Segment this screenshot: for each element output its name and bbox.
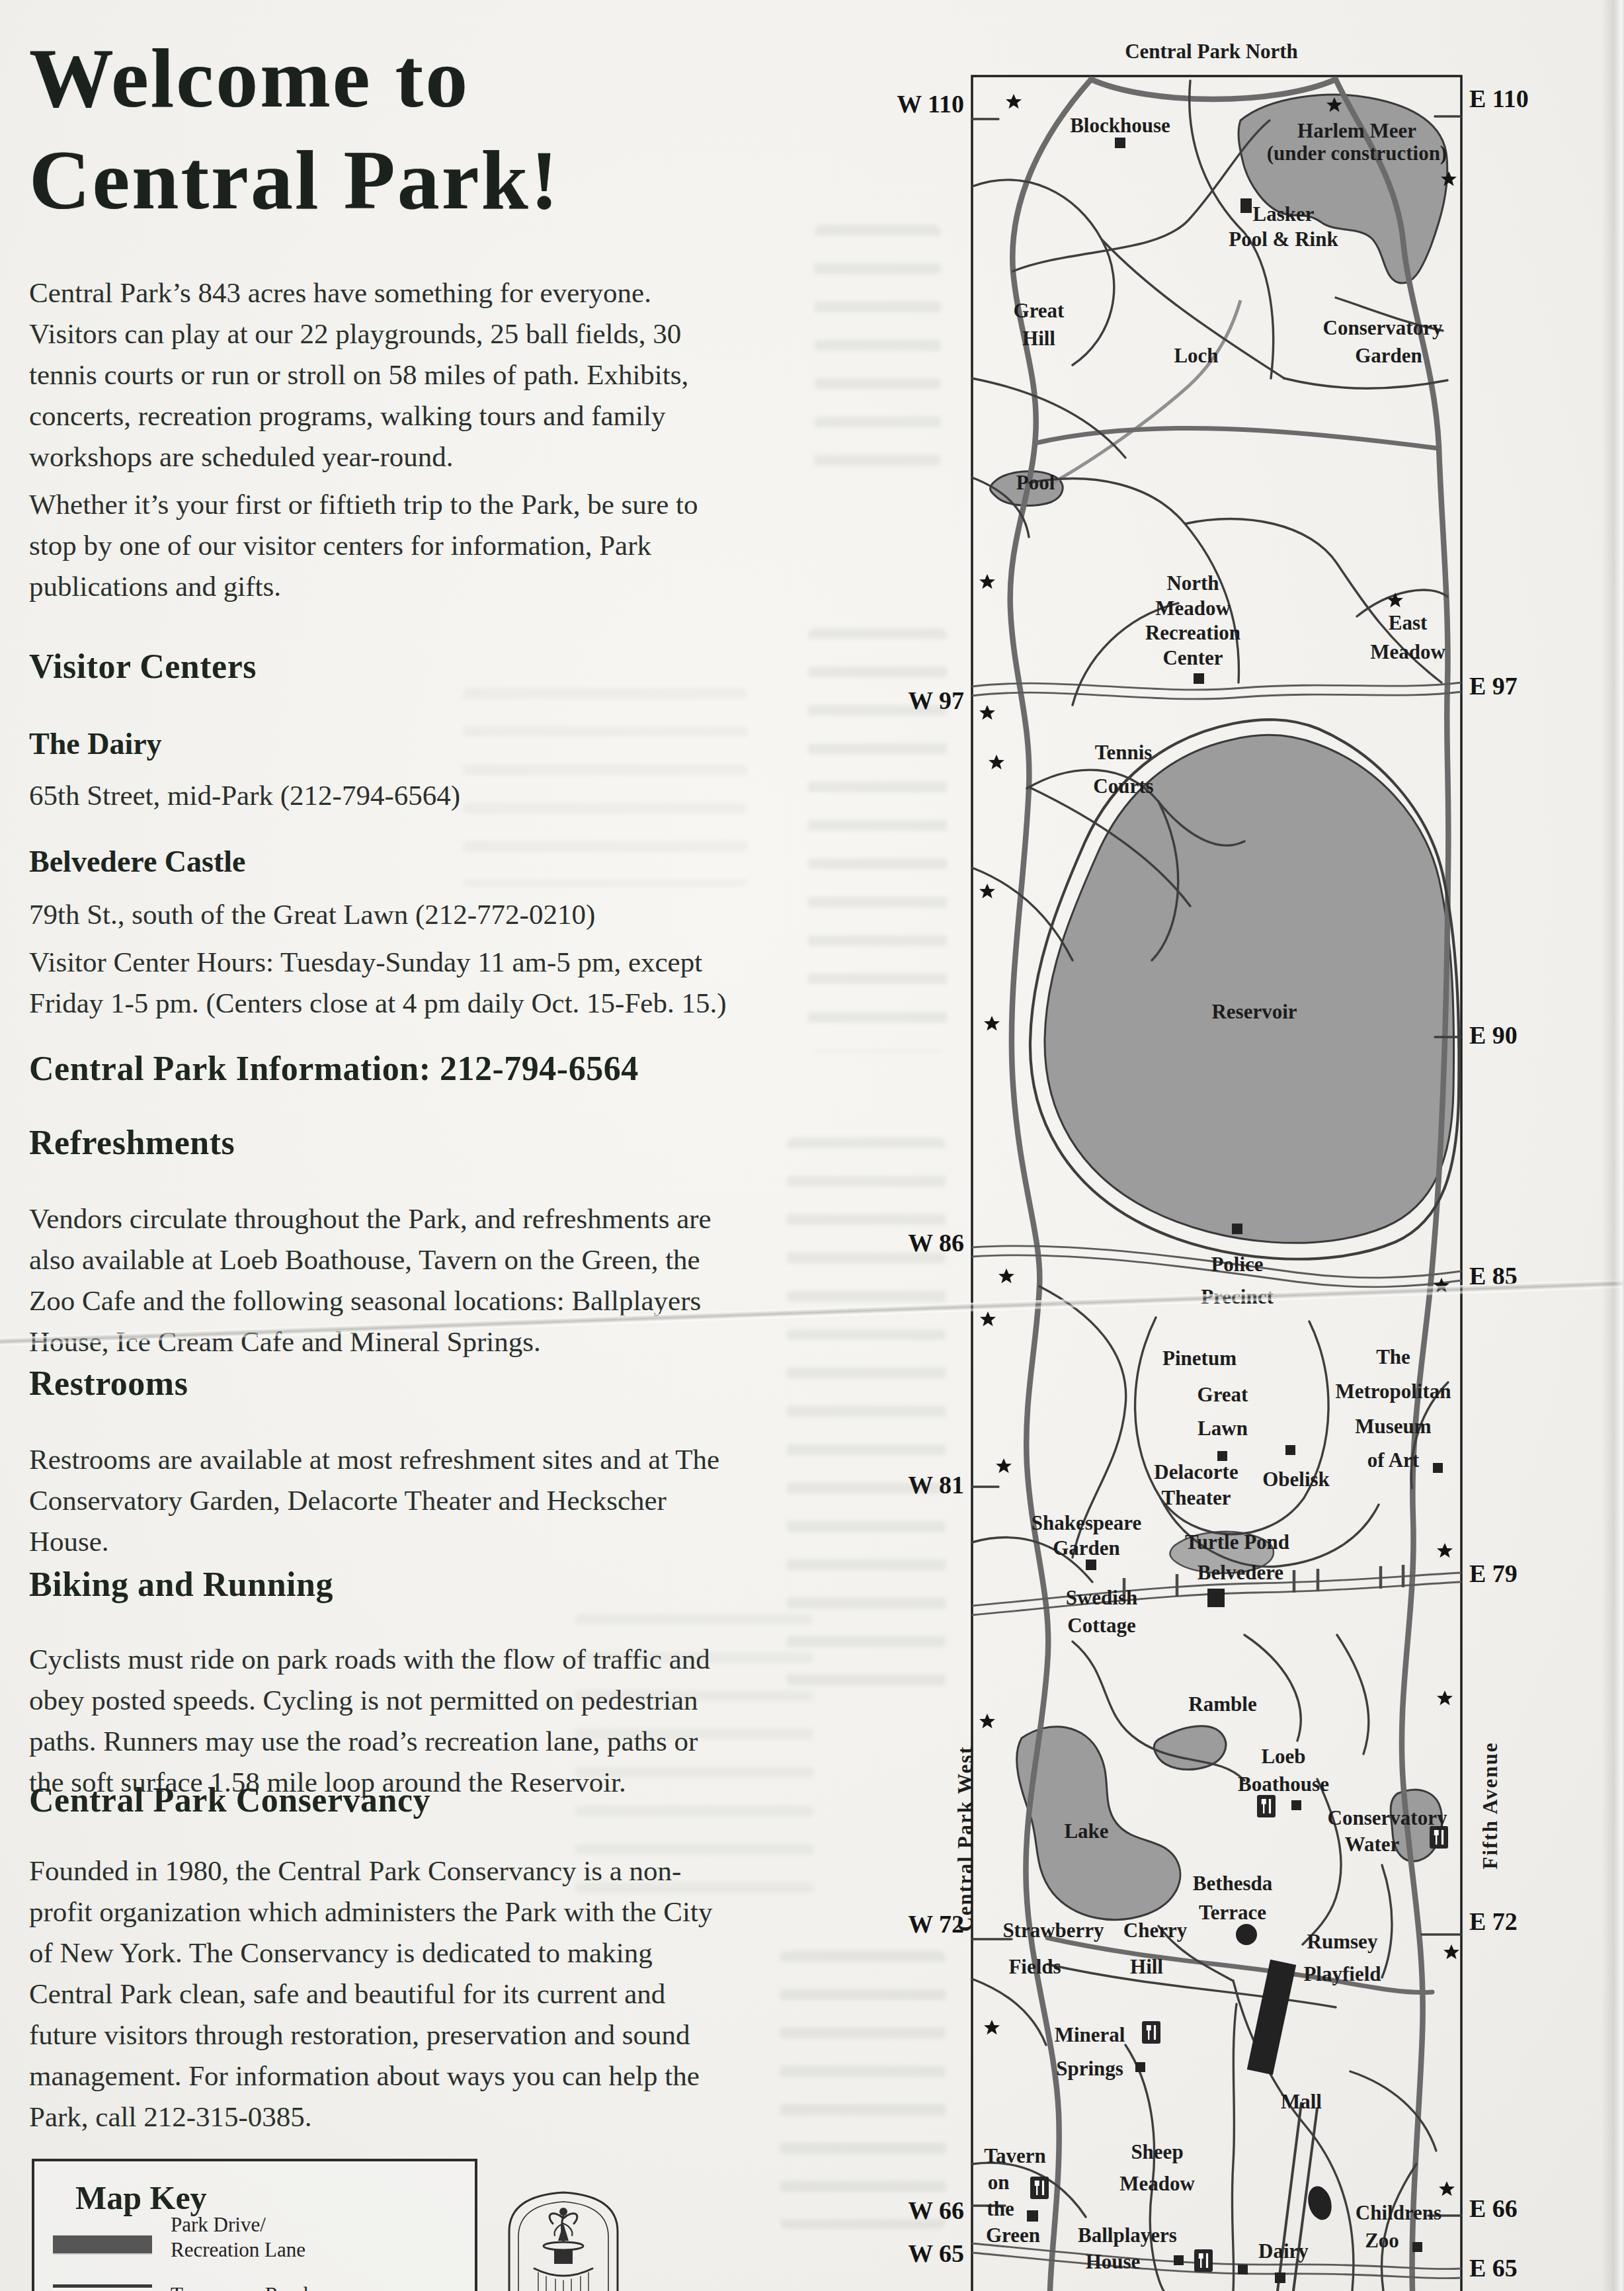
street-label-e72: E 72 bbox=[1469, 1907, 1518, 1935]
bleed-through-ghost bbox=[808, 628, 947, 1052]
intro-paragraph-2: Whether it’s your first or fiftieth trip… bbox=[29, 484, 698, 607]
visitor-center-hours: Visitor Center Hours: Tuesday-Sunday 11 … bbox=[29, 942, 727, 1024]
label-conservatory-water: Conservatory bbox=[1328, 1806, 1447, 1829]
label-lake: Lake bbox=[1064, 1819, 1108, 1843]
section-heading-biking-running: Biking and Running bbox=[29, 1565, 333, 1604]
label-sheep-meadow: Sheep bbox=[1131, 2140, 1183, 2163]
park-drive-swatch bbox=[53, 2235, 152, 2253]
street-label-e66: E 66 bbox=[1469, 2194, 1518, 2222]
label-bethesda-terrace-2: Terrace bbox=[1199, 1901, 1266, 1924]
label-rumsey-playfield-2: Playfield bbox=[1303, 1962, 1381, 1985]
body-line: of New York. The Conservancy is dedicate… bbox=[29, 1933, 712, 1974]
map-key-label: Park Drive/ bbox=[171, 2213, 266, 2237]
label-lasker-2: Pool & Rink bbox=[1229, 228, 1338, 251]
body-line: also available at Loeb Boathouse, Tavern… bbox=[29, 1239, 711, 1280]
restrooms-body: Restrooms are available at most refreshm… bbox=[29, 1439, 719, 1562]
street-label-e65: E 65 bbox=[1469, 2254, 1518, 2282]
label-met-museum-3: Museum bbox=[1355, 1415, 1432, 1438]
label-belvedere: Belvedere bbox=[1198, 1561, 1283, 1584]
visitor-center-name-dairy: The Dairy bbox=[29, 726, 162, 761]
body-line: concerts, recreation programs, walking t… bbox=[29, 396, 688, 437]
label-great-hill-2: Hill bbox=[1022, 327, 1055, 350]
label-ramble: Ramble bbox=[1188, 1692, 1256, 1716]
label-bethesda-terrace: Bethesda bbox=[1193, 1872, 1273, 1895]
label-pool: Pool bbox=[1016, 471, 1055, 494]
visitor-center-name-belvedere: Belvedere Castle bbox=[29, 844, 245, 879]
label-ballplayers-house-2: House bbox=[1086, 2250, 1141, 2273]
body-line: Central Park clean, safe and beautiful f… bbox=[29, 1974, 712, 2015]
page-title-line2: Central Park! bbox=[29, 130, 560, 231]
label-childrens-zoo-2: Zoo bbox=[1365, 2229, 1399, 2252]
body-line: Visitor Center Hours: Tuesday-Sunday 11 … bbox=[29, 942, 727, 983]
label-shakespeare-garden-2: Garden bbox=[1053, 1536, 1120, 1560]
body-line: Friday 1-5 pm. (Centers close at 4 pm da… bbox=[29, 983, 727, 1024]
map-title: Central Park North bbox=[1125, 40, 1298, 63]
map-key-box: Map Key Park Drive/ Recreation Lane Tran… bbox=[32, 2159, 477, 2291]
label-conservatory-garden-2: Garden bbox=[1355, 344, 1422, 367]
park-map: Central Park North W 110 E 110 W 97 E 97… bbox=[873, 20, 1624, 2291]
brochure-page: Welcome to Central Park! Central Park’s … bbox=[0, 0, 1624, 2291]
section-heading-refreshments: Refreshments bbox=[29, 1123, 235, 1162]
label-delacorte-2: Theater bbox=[1161, 1486, 1231, 1509]
label-met-museum-4: of Art bbox=[1367, 1448, 1420, 1472]
label-tavern-2: on bbox=[988, 2171, 1010, 2194]
label-ballplayers-house: Ballplayers bbox=[1078, 2224, 1177, 2247]
label-tennis-courts-2: Courts bbox=[1093, 774, 1153, 798]
restaurant-icon-mineral-springs bbox=[1142, 2021, 1160, 2044]
label-east-meadow-2: Meadow bbox=[1370, 640, 1445, 663]
label-north-meadow-2: Meadow bbox=[1155, 597, 1231, 620]
label-north-meadow-3: Recreation bbox=[1145, 621, 1240, 644]
loch-stream bbox=[1053, 300, 1240, 483]
street-label-e90: E 90 bbox=[1469, 1021, 1518, 1049]
map-key-heading: Map Key bbox=[75, 2179, 207, 2217]
label-tennis-courts: Tennis bbox=[1095, 741, 1153, 764]
label-strawberry-fields-2: Fields bbox=[1008, 1955, 1061, 1978]
label-conservatory-garden: Conservatory bbox=[1323, 316, 1443, 339]
street-label-w65: W 65 bbox=[908, 2239, 964, 2267]
body-line: tennis courts or run or stroll on 58 mil… bbox=[29, 354, 688, 396]
label-swedish-cottage: Swedish bbox=[1066, 1586, 1138, 1609]
bleed-through-ghost bbox=[815, 225, 940, 489]
reservoir-water bbox=[1045, 735, 1454, 1243]
bethesda-fountain-illustration bbox=[497, 2183, 629, 2291]
label-tavern: Tavern bbox=[984, 2144, 1046, 2167]
label-loeb-boathouse-2: Boathouse bbox=[1238, 1772, 1329, 1796]
body-line: management. For information about ways y… bbox=[29, 2056, 712, 2097]
label-police-precinct: Police bbox=[1211, 1253, 1263, 1276]
restaurant-icon-conservatory-water bbox=[1430, 1826, 1448, 1849]
label-cherry-hill: Cherry bbox=[1123, 1919, 1188, 1942]
street-label-e110: E 110 bbox=[1469, 85, 1529, 112]
section-heading-visitor-centers: Visitor Centers bbox=[29, 647, 257, 686]
body-line: Restrooms are available at most refreshm… bbox=[29, 1439, 719, 1480]
label-delacorte: Delacorte bbox=[1154, 1460, 1238, 1483]
label-rumsey-playfield: Rumsey bbox=[1307, 1930, 1378, 1953]
label-strawberry-fields: Strawberry bbox=[1002, 1919, 1104, 1942]
label-turtle-pond: Turtle Pond bbox=[1185, 1530, 1289, 1554]
visitor-center-detail-dairy: 65th Street, mid-Park (212-794-6564) bbox=[29, 775, 460, 816]
body-line: Park, call 212-315-0385. bbox=[29, 2097, 712, 2138]
carousel-marker bbox=[1305, 2183, 1335, 2222]
bleed-through-ghost bbox=[463, 688, 747, 886]
page-title: Welcome to Central Park! bbox=[29, 28, 560, 231]
label-north-meadow: North bbox=[1166, 571, 1219, 595]
street-label-e97: E 97 bbox=[1469, 672, 1518, 700]
body-line: publications and gifts. bbox=[29, 566, 698, 607]
label-swedish-cottage-2: Cottage bbox=[1067, 1614, 1135, 1637]
avenue-label-fifth-avenue: Fifth Avenue bbox=[1479, 1741, 1502, 1869]
label-tavern-4: Green bbox=[986, 2224, 1040, 2247]
lake-water-arm bbox=[1154, 1726, 1226, 1770]
avenue-label-central-park-west: Central Park West bbox=[954, 1745, 977, 1931]
label-great-lawn-2: Lawn bbox=[1198, 1417, 1248, 1440]
label-mineral-springs: Mineral bbox=[1055, 2023, 1125, 2046]
label-lasker: Lasker bbox=[1253, 202, 1315, 226]
map-key-label: Transverse Road bbox=[171, 2283, 308, 2291]
label-east-meadow: East bbox=[1389, 611, 1428, 634]
body-line: workshops are scheduled year-round. bbox=[29, 437, 688, 478]
body-line: Visitors can play at our 22 playgrounds,… bbox=[29, 313, 688, 354]
body-line: Central Park’s 843 acres have something … bbox=[29, 272, 688, 313]
label-tavern-3: the bbox=[987, 2197, 1014, 2220]
section-heading-restrooms: Restrooms bbox=[29, 1364, 188, 1403]
label-dairy: Dairy bbox=[1258, 2239, 1309, 2263]
label-met-museum-2: Metropolitan bbox=[1335, 1380, 1451, 1403]
label-under-construction: (under construction) bbox=[1267, 142, 1447, 165]
body-line: House. bbox=[29, 1521, 719, 1562]
transverse-road-swatch bbox=[53, 2284, 152, 2291]
label-shakespeare-garden: Shakespeare bbox=[1032, 1511, 1142, 1534]
label-reservoir: Reservoir bbox=[1211, 1000, 1297, 1023]
label-north-meadow-4: Center bbox=[1162, 646, 1223, 669]
label-mall: Mall bbox=[1281, 2090, 1322, 2113]
visitor-center-detail-belvedere: 79th St., south of the Great Lawn (212-7… bbox=[29, 894, 595, 935]
label-childrens-zoo: Childrens bbox=[1356, 2201, 1441, 2224]
label-mineral-springs-2: Springs bbox=[1056, 2057, 1123, 2080]
body-line: stop by one of our visitor centers for i… bbox=[29, 525, 698, 566]
restaurant-icon-tavern bbox=[1030, 2177, 1049, 2199]
label-obelisk: Obelisk bbox=[1262, 1468, 1330, 1491]
label-met-museum: The bbox=[1376, 1345, 1410, 1368]
body-line: Conservatory Garden, Delacorte Theater a… bbox=[29, 1480, 719, 1521]
section-heading-park-information: Central Park Information: 212-794-6564 bbox=[29, 1049, 639, 1088]
label-conservatory-water-2: Water bbox=[1345, 1833, 1400, 1856]
label-blockhouse: Blockhouse bbox=[1070, 114, 1170, 137]
street-label-w110: W 110 bbox=[897, 90, 964, 118]
street-label-e79: E 79 bbox=[1469, 1560, 1518, 1587]
label-great-hill: Great bbox=[1014, 299, 1065, 322]
page-title-line1: Welcome to bbox=[29, 28, 560, 130]
map-key-label: Recreation Lane bbox=[171, 2238, 305, 2262]
restaurant-icon-loeb bbox=[1257, 1795, 1276, 1817]
restaurant-icon-ballplayers bbox=[1194, 2249, 1213, 2272]
label-loch: Loch bbox=[1174, 344, 1218, 367]
label-cherry-hill-2: Hill bbox=[1130, 1955, 1163, 1978]
label-pinetum: Pinetum bbox=[1162, 1347, 1237, 1370]
page-edge-shadow bbox=[1602, 0, 1624, 2291]
body-line: Whether it’s your first or fiftieth trip… bbox=[29, 484, 698, 525]
body-line: future visitors through restoration, pre… bbox=[29, 2015, 712, 2056]
bethesda-terrace-marker bbox=[1236, 1924, 1257, 1945]
body-line: Vendors circulate throughout the Park, a… bbox=[29, 1198, 711, 1239]
intro-paragraph-1: Central Park’s 843 acres have something … bbox=[29, 272, 688, 478]
bleed-through-ghost bbox=[575, 1614, 813, 1918]
section-heading-conservancy: Central Park Conservancy bbox=[29, 1780, 430, 1819]
label-loeb-boathouse: Loeb bbox=[1261, 1745, 1305, 1768]
label-harlem-meer: Harlem Meer bbox=[1297, 119, 1416, 142]
bleed-through-ghost bbox=[780, 1951, 946, 2229]
label-sheep-meadow-2: Meadow bbox=[1119, 2172, 1195, 2195]
label-great-lawn: Great bbox=[1198, 1383, 1249, 1406]
rumsey-playfield-marker bbox=[1247, 1960, 1296, 2075]
